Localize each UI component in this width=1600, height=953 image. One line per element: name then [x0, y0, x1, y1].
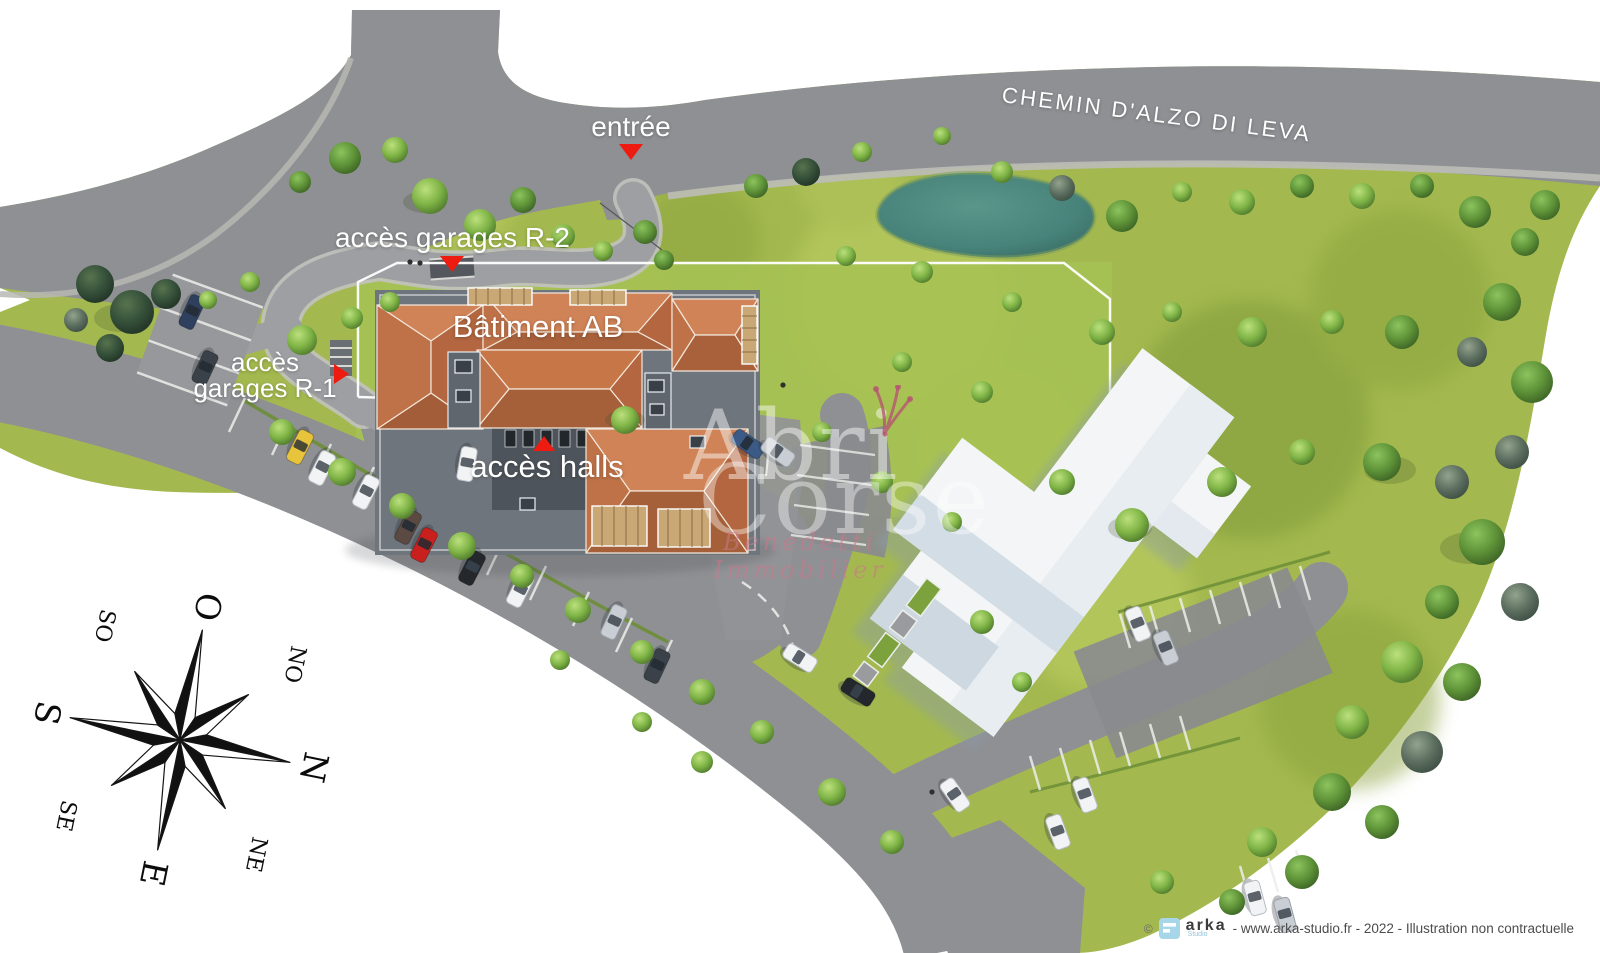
compass-label-n: N: [291, 749, 330, 786]
garage-r2-ramp: [429, 256, 474, 279]
site-plan: CHEMIN D'ALZO DI LEVA entrée accès garag…: [0, 0, 1600, 953]
copyright-symbol: ©: [1144, 922, 1153, 936]
compass-label-e: E: [131, 857, 175, 889]
credit-line: © arka Studio - www.arka-studio.fr - 202…: [1144, 918, 1574, 939]
credit-text: - www.arka-studio.fr - 2022 - Illustrati…: [1233, 921, 1574, 936]
garage-r1-ramp: [330, 340, 352, 376]
compass-label-s: S: [30, 697, 69, 728]
halls-courtyard: [492, 426, 592, 510]
arka-brand: arka Studio: [1186, 919, 1227, 939]
compass-label-o: O: [185, 589, 230, 624]
arka-brand-name: arka: [1186, 919, 1227, 933]
compass-label-so: SO: [89, 607, 120, 644]
compass-label-ne: NE: [240, 835, 272, 875]
arka-brand-sub: Studio: [1188, 932, 1227, 938]
arka-logo-icon: [1159, 918, 1180, 939]
compass-label-no: NO: [278, 644, 310, 686]
compass-label-se: SE: [50, 798, 81, 833]
compass-rose: N E S O NE SE SO NO: [30, 580, 330, 900]
